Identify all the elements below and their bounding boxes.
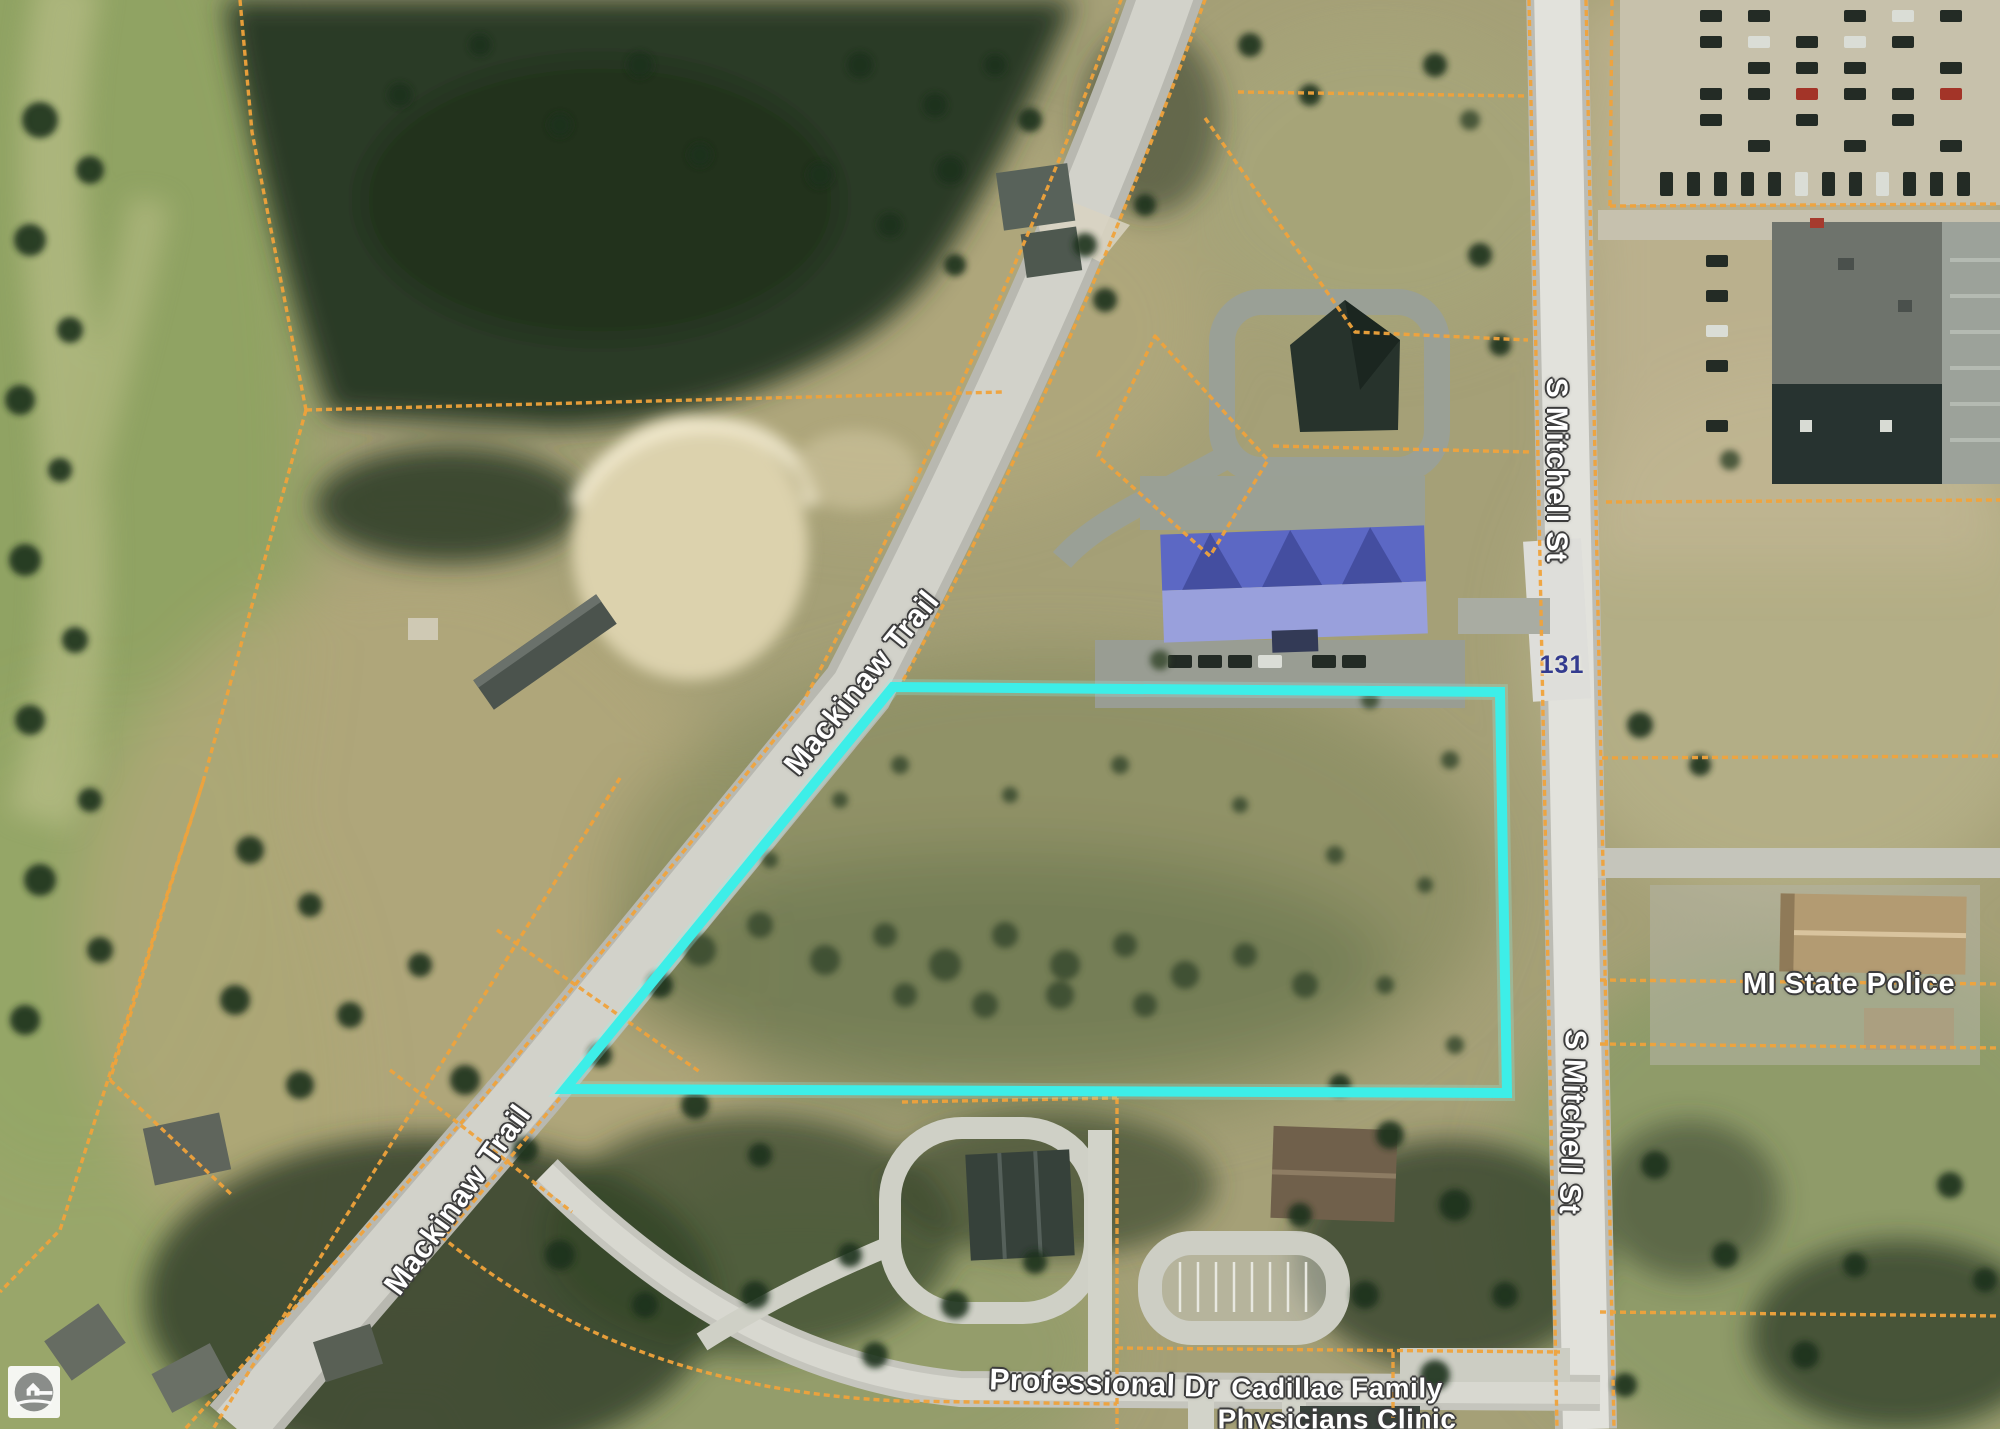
provider-logo-icon	[11, 1369, 57, 1415]
satellite-imagery	[0, 0, 2000, 1429]
building-clinic-west	[965, 1149, 1074, 1260]
building-mi-state-police	[1779, 893, 1966, 974]
map-viewport[interactable]: Mackinaw TrailMackinaw TrailS Mitchell S…	[0, 0, 2000, 1429]
map-provider-logo	[8, 1366, 60, 1418]
building-police-annex	[1864, 1008, 1954, 1050]
building-bottom-partial	[1300, 1406, 1420, 1429]
building-industrial-top-right	[1772, 218, 2000, 484]
